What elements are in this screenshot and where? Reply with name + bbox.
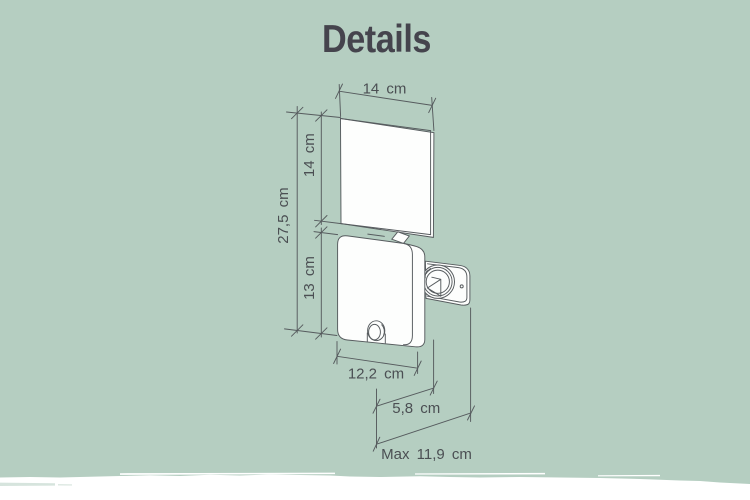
svg-text:5,8 cm: 5,8 cm <box>392 400 440 417</box>
svg-text:27,5 cm: 27,5 cm <box>275 187 292 243</box>
svg-text:Max 11,9 cm: Max 11,9 cm <box>381 446 472 463</box>
svg-text:14 cm: 14 cm <box>363 80 407 97</box>
svg-text:12,2 cm: 12,2 cm <box>348 366 404 383</box>
svg-text:Details: Details <box>322 18 431 61</box>
svg-text:13 cm: 13 cm <box>301 256 318 300</box>
svg-text:14 cm: 14 cm <box>301 133 318 177</box>
